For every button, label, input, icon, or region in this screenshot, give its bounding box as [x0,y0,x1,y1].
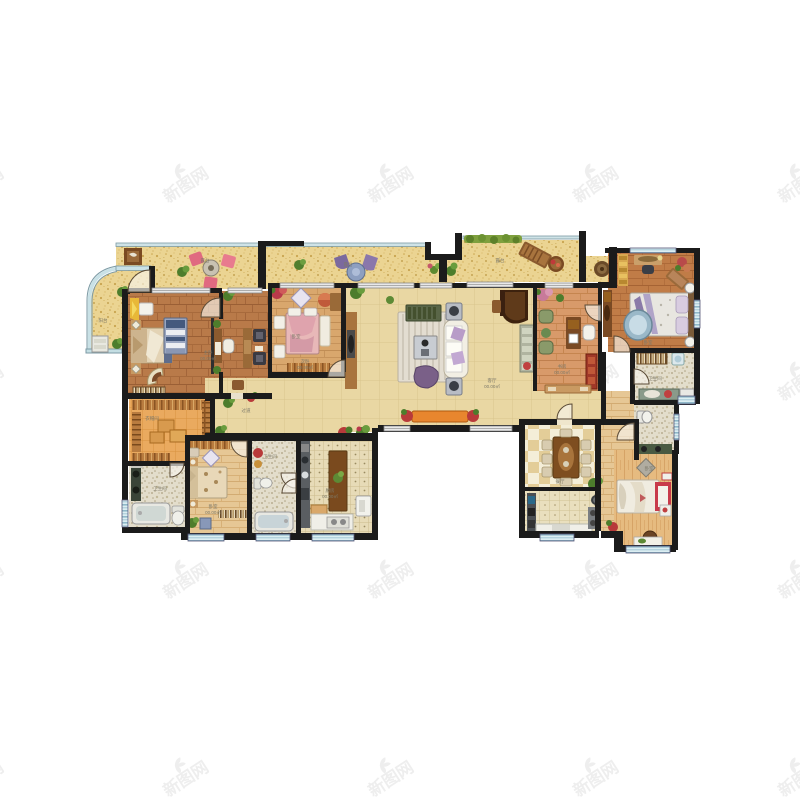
svg-text:过道: 过道 [242,407,251,414]
svg-text:衣帽间: 衣帽间 [145,415,159,422]
svg-text:卫生间: 卫生间 [648,375,662,382]
svg-text:主卧: 主卧 [204,349,213,356]
svg-text:露台: 露台 [496,257,505,264]
svg-text:露台: 露台 [201,257,210,264]
svg-text:次卧: 次卧 [301,358,310,365]
svg-text:卫生间: 卫生间 [153,485,167,492]
svg-text:书房: 书房 [558,363,567,370]
svg-text:00.00㎡: 00.00㎡ [200,355,216,361]
svg-text:卧室: 卧室 [209,503,218,510]
svg-text:阳台: 阳台 [99,317,108,324]
svg-text:卧室: 卧室 [292,333,301,340]
svg-text:露台: 露台 [344,261,353,268]
svg-text:餐厅: 餐厅 [556,478,565,485]
svg-text:00.00㎡: 00.00㎡ [554,369,570,375]
svg-text:00.00㎡: 00.00㎡ [205,509,221,515]
svg-text:卧室: 卧室 [644,339,653,346]
svg-text:00.00㎡: 00.00㎡ [297,364,313,370]
svg-text:卧室: 卧室 [645,465,654,472]
svg-text:客厅: 客厅 [488,377,497,384]
svg-text:00.00㎡: 00.00㎡ [484,383,500,389]
svg-text:厨房: 厨房 [326,487,335,494]
svg-text:00.00㎡: 00.00㎡ [322,493,338,499]
svg-text:卫生间: 卫生间 [263,453,277,460]
